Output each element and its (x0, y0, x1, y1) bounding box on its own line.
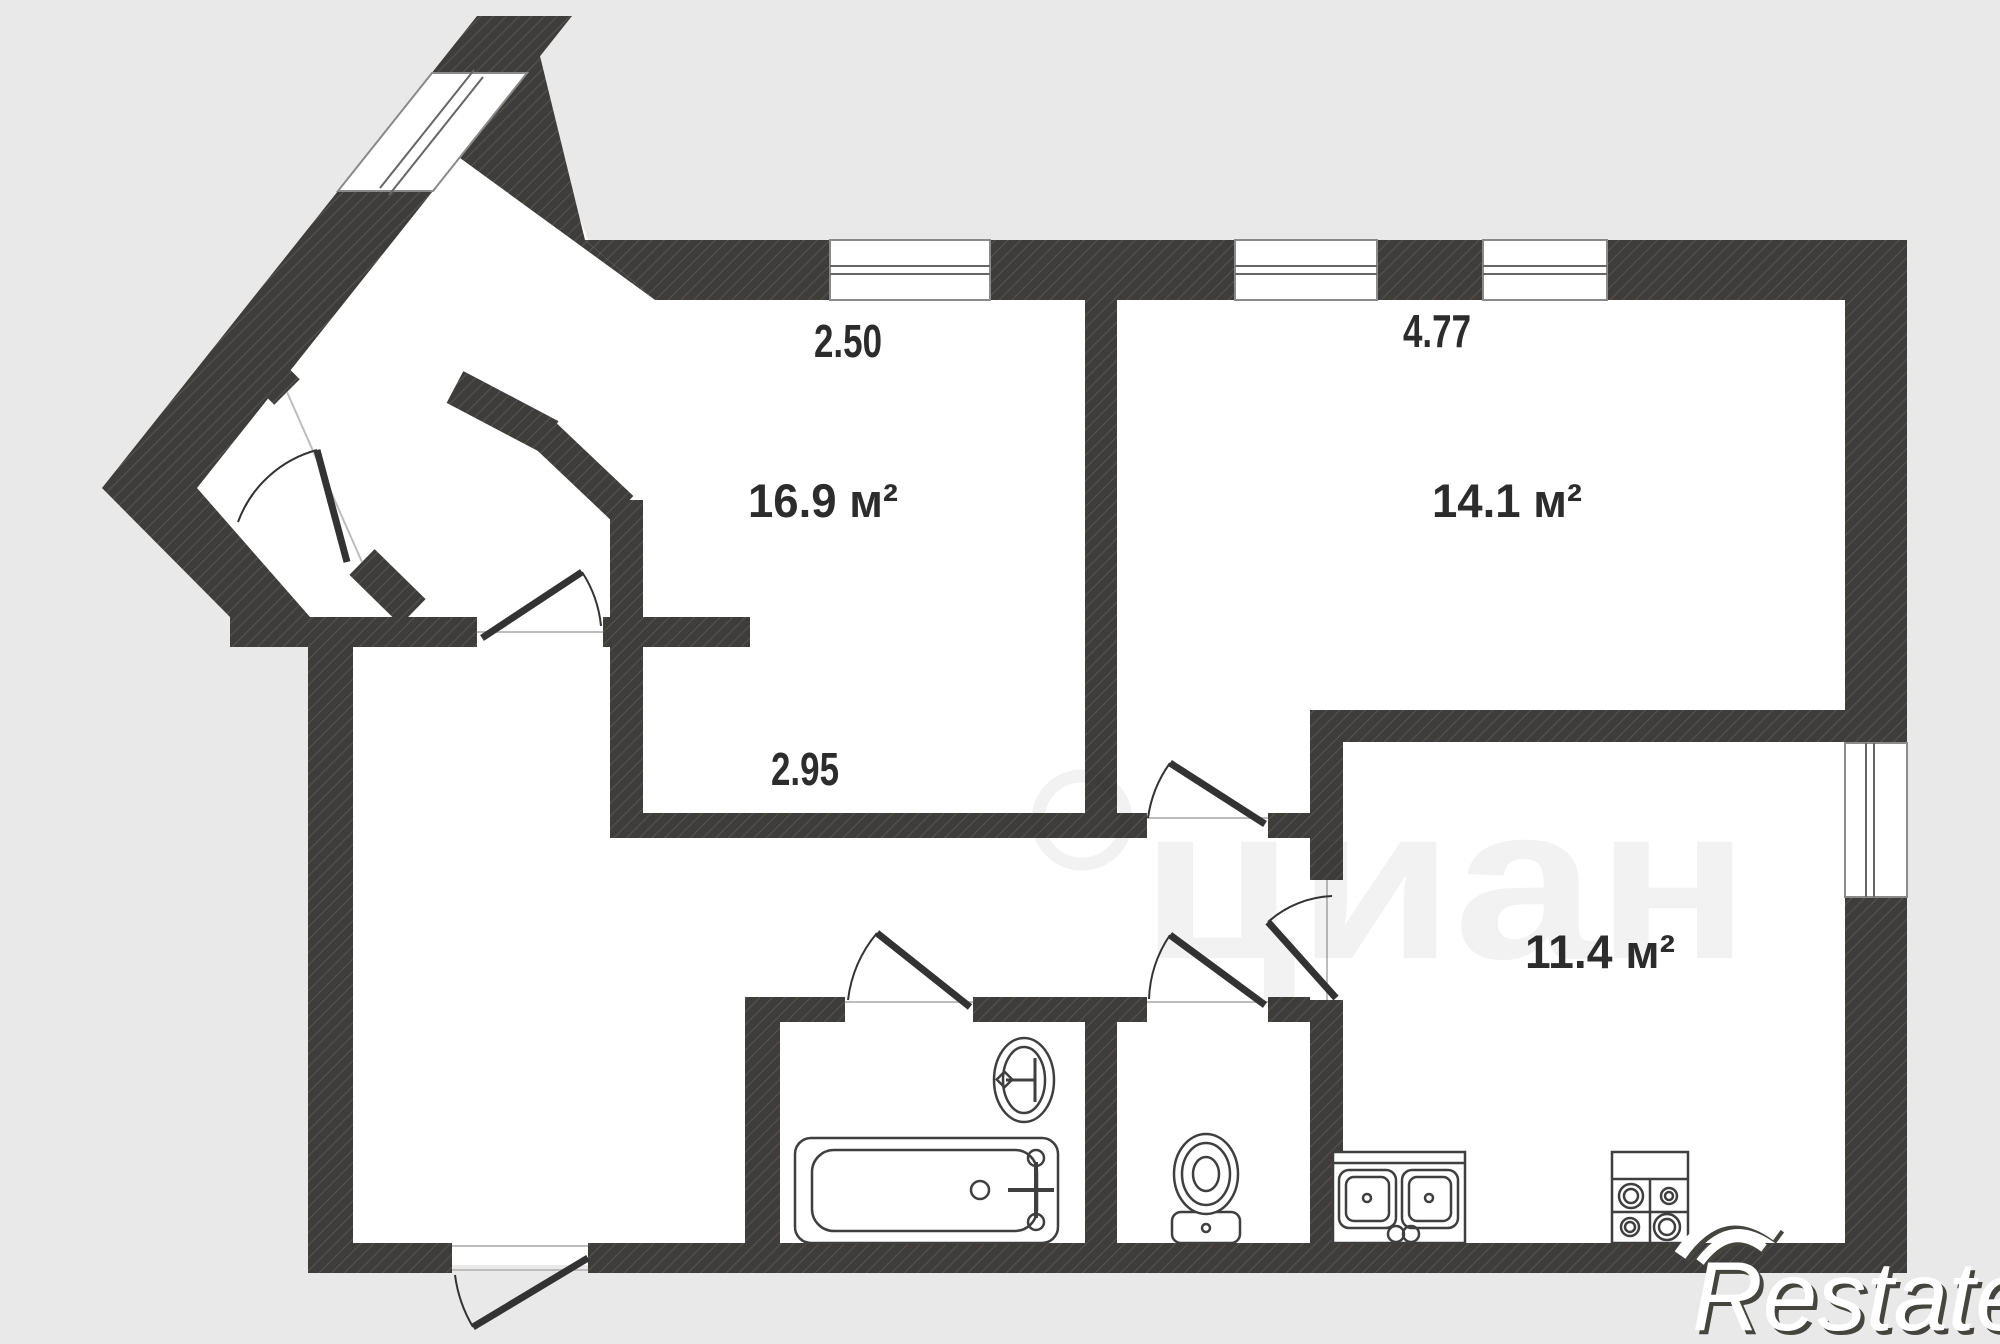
dimension-label-3: 2.95 (771, 743, 839, 795)
wall-kitchen-north (1310, 710, 1845, 742)
wall-right-upper (1845, 240, 1907, 743)
wall-bottom-left (308, 1243, 452, 1273)
stove-icon (1612, 1152, 1688, 1243)
window-top-3 (1483, 240, 1607, 300)
wall-top-right (1607, 240, 1845, 300)
wash-basin-icon (994, 1038, 1054, 1122)
wall-room-divider (1085, 300, 1117, 813)
floor-plan-page: 2.50 4.77 2.95 16.9 м² 14.1 м² 11.4 м² ц… (0, 0, 2000, 1344)
wall-bath-west (745, 1022, 780, 1243)
brand-text: Restate (1692, 1241, 2000, 1344)
wall-bath-north2 (973, 997, 1147, 1022)
bathtub-icon (795, 1138, 1058, 1243)
window-top-1 (830, 240, 990, 300)
dimension-label-2: 4.77 (1403, 305, 1471, 357)
floor-plan: 2.50 4.77 2.95 16.9 м² 14.1 м² 11.4 м² ц… (0, 0, 2000, 1344)
wall-corridor-north (610, 813, 1147, 838)
room-2-area-label: 14.1 м² (1432, 474, 1582, 527)
window-top-2 (1235, 240, 1377, 300)
dimension-label-1: 2.50 (814, 315, 882, 367)
center-watermark: циан (1038, 759, 1750, 1005)
wall-right-lower (1845, 897, 1907, 1273)
wall-bath-wc-divider (1085, 1022, 1117, 1243)
wall-top-mid2 (1377, 240, 1483, 300)
wall-hall-north (230, 617, 477, 647)
kitchen-sink-icon (1333, 1152, 1465, 1243)
wall-left (308, 647, 353, 1243)
window-right (1845, 743, 1907, 897)
wall-bath-north1 (745, 997, 845, 1022)
wall-room1-left (610, 500, 643, 838)
wall-top-mid1 (990, 240, 1235, 300)
center-watermark-text: циан (1140, 759, 1750, 1005)
toilet-icon (1172, 1134, 1240, 1243)
room-1-area-label: 16.9 м² (748, 474, 898, 527)
